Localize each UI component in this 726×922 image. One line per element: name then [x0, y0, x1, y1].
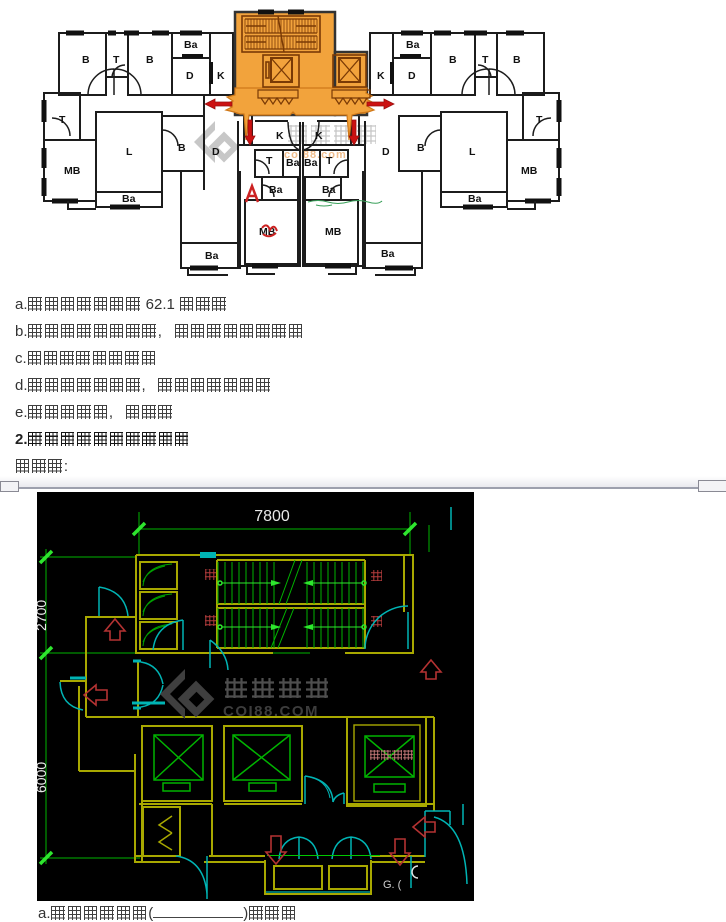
svg-text:T: T — [326, 155, 333, 167]
svg-text:Ba: Ba — [322, 184, 336, 196]
svg-text:B: B — [82, 54, 90, 66]
svg-text:L: L — [469, 146, 476, 158]
svg-text:Ba: Ba — [269, 184, 283, 196]
svg-text:K: K — [217, 70, 225, 82]
svg-text:Ba: Ba — [205, 250, 219, 262]
svg-text:T: T — [113, 54, 120, 66]
svg-text:MB: MB — [325, 226, 342, 238]
svg-text:Ba: Ba — [468, 193, 482, 205]
svg-text:MB: MB — [64, 165, 81, 177]
svg-text:D: D — [408, 70, 416, 82]
svg-text:L: L — [126, 146, 133, 158]
svg-text:T: T — [59, 114, 66, 126]
svg-text:B: B — [178, 142, 186, 154]
svg-text:Ba: Ba — [381, 248, 395, 260]
svg-text:Ba: Ba — [406, 39, 420, 51]
svg-text:Ba: Ba — [184, 39, 198, 51]
svg-text:K: K — [315, 130, 323, 142]
svg-text:6000: 6000 — [37, 762, 49, 793]
svg-text:COI88.COM: COI88.COM — [223, 703, 319, 720]
svg-text:MB: MB — [521, 165, 538, 177]
svg-text:2700: 2700 — [37, 600, 49, 631]
svg-text:Ba: Ba — [122, 193, 136, 205]
svg-text:B: B — [513, 54, 521, 66]
svg-text:T: T — [266, 155, 273, 167]
svg-text:K: K — [377, 70, 385, 82]
svg-text:D: D — [382, 146, 390, 158]
svg-text:G. (: G. ( — [383, 879, 402, 891]
svg-text:K: K — [276, 130, 284, 142]
svg-text:D: D — [186, 70, 194, 82]
svg-text:7800: 7800 — [254, 508, 290, 525]
svg-text:Ba: Ba — [286, 157, 300, 169]
svg-text:Ba: Ba — [304, 157, 318, 169]
svg-text:T: T — [536, 114, 543, 126]
svg-text:B: B — [146, 54, 154, 66]
svg-text:B: B — [449, 54, 457, 66]
svg-text:B: B — [417, 142, 425, 154]
svg-text:T: T — [482, 54, 489, 66]
svg-text:D: D — [212, 146, 220, 158]
